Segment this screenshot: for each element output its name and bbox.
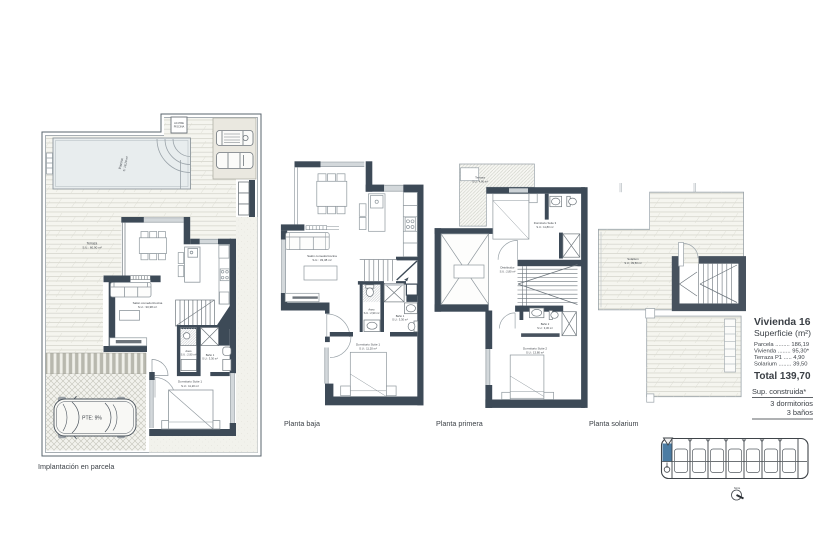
svg-text:S.U.: 3,30 m²: S.U.: 3,30 m²	[537, 326, 553, 330]
svg-text:S.U.: 60,90 m²: S.U.: 60,90 m²	[82, 246, 101, 250]
svg-text:S.U.: 3,30 m²: S.U.: 3,30 m²	[392, 318, 408, 322]
svg-text:Vivienda 16: Vivienda 16	[754, 317, 811, 328]
svg-text:Norte: Norte	[734, 486, 741, 490]
svg-text:Baño 1: Baño 1	[396, 314, 405, 318]
svg-text:Parcela ......... 186,19: Parcela ......... 186,19	[754, 342, 809, 348]
svg-text:Terraza: Terraza	[475, 176, 485, 180]
svg-text:3 baños: 3 baños	[787, 408, 814, 417]
svg-text:PTE: 9%: PTE: 9%	[82, 416, 102, 422]
svg-text:PISCINA: PISCINA	[174, 125, 185, 129]
svg-text:S.U.: 39,50 m²: S.U.: 39,50 m²	[624, 261, 641, 265]
svg-text:S.U.: 2,90 m²: S.U.: 2,90 m²	[364, 311, 380, 315]
svg-text:S.U.: 13,80 m²: S.U.: 13,80 m²	[526, 351, 544, 355]
svg-text:S.U.: 4,90 m²: S.U.: 4,90 m²	[472, 179, 488, 183]
svg-text:Distribuidor: Distribuidor	[500, 266, 514, 270]
svg-text:Solarium ........ 39,50: Solarium ........ 39,50	[754, 362, 808, 368]
svg-text:S.U.: 11,80 m²: S.U.: 11,80 m²	[536, 225, 553, 229]
svg-text:S.U.: 11,20 m²: S.U.: 11,20 m²	[181, 384, 199, 388]
svg-text:Aseo: Aseo	[185, 349, 192, 353]
svg-text:S.U.: 11,20 m²: S.U.: 11,20 m²	[359, 347, 377, 351]
svg-text:Vivienda ........ 95,30*: Vivienda ........ 95,30*	[754, 349, 810, 355]
svg-text:Dormitorio Suite 3: Dormitorio Suite 3	[534, 221, 557, 225]
svg-text:S.U.: 33,38 m²: S.U.: 33,38 m²	[312, 258, 331, 262]
svg-text:Baño 2: Baño 2	[541, 322, 550, 326]
svg-text:Terraza P1 ..... 4,90: Terraza P1 ..... 4,90	[754, 355, 805, 361]
svg-text:Total 139,70: Total 139,70	[754, 371, 811, 382]
svg-text:AC.PRE: AC.PRE	[174, 121, 184, 125]
svg-text:Implantación en parcela: Implantación en parcela	[38, 462, 114, 471]
svg-text:Solarium: Solarium	[627, 257, 639, 261]
svg-text:Planta solarium: Planta solarium	[589, 419, 639, 428]
svg-text:Baño 1: Baño 1	[206, 353, 215, 357]
svg-text:Sup. construida*: Sup. construida*	[752, 387, 806, 396]
svg-text:S.U.: 2,90 m²: S.U.: 2,90 m²	[181, 353, 197, 357]
svg-text:Planta primera: Planta primera	[436, 419, 483, 428]
svg-text:Superficie (m²): Superficie (m²)	[754, 328, 811, 338]
svg-text:Planta baja: Planta baja	[284, 419, 320, 428]
svg-text:S.U.: 3,30 m²: S.U.: 3,30 m²	[202, 357, 218, 361]
svg-text:S.U.: 2,80 m²: S.U.: 2,80 m²	[500, 269, 516, 273]
svg-text:3 dormitorios: 3 dormitorios	[770, 399, 813, 408]
svg-text:S.U.: 33,38 m²: S.U.: 33,38 m²	[138, 305, 157, 309]
svg-text:Aseo: Aseo	[368, 308, 375, 312]
